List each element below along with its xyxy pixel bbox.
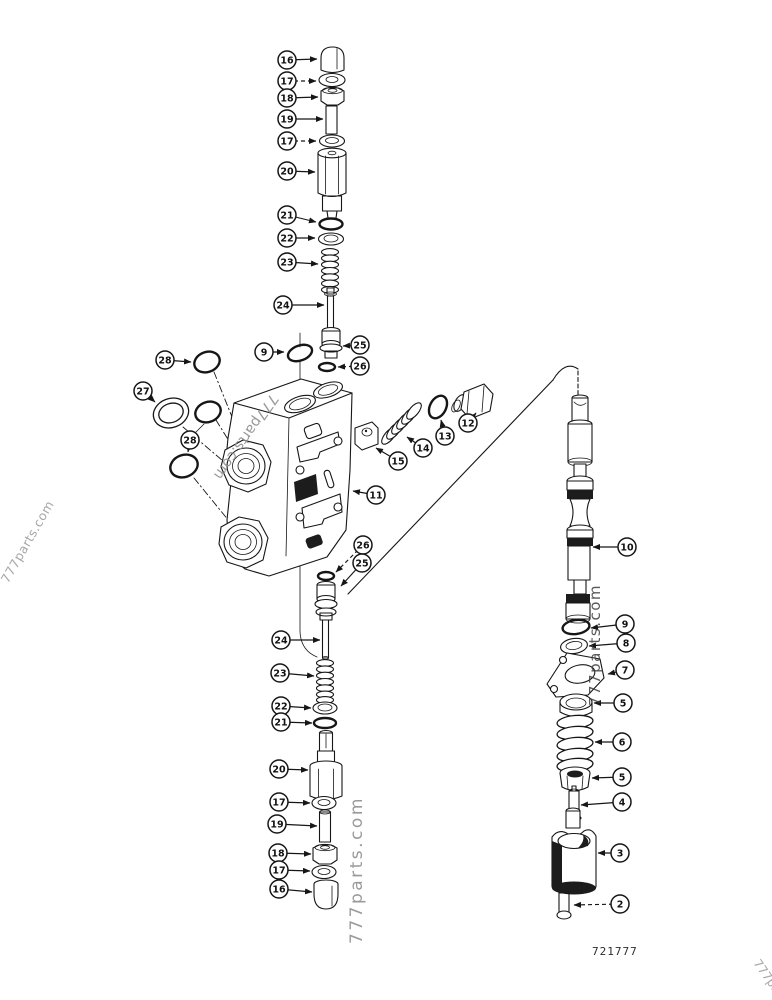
callout-2: 2 bbox=[574, 895, 629, 913]
exploded-parts-diagram: 1617181917202122232492526282728111514131… bbox=[0, 0, 772, 1000]
svg-text:13: 13 bbox=[438, 431, 451, 442]
callout-balloons: 1617181917202122232492526282728111514131… bbox=[134, 51, 636, 913]
figure-number: 721777 bbox=[592, 945, 638, 958]
callout-5: 5 bbox=[592, 768, 631, 786]
callout-19: 19 bbox=[268, 815, 317, 833]
poppet-stem-24-bottom bbox=[323, 620, 329, 660]
callout-6: 6 bbox=[595, 733, 631, 751]
callout-17: 17 bbox=[278, 132, 316, 150]
svg-text:15: 15 bbox=[391, 456, 404, 467]
spring-23-top bbox=[322, 249, 339, 294]
svg-text:9: 9 bbox=[261, 347, 268, 358]
callout-20: 20 bbox=[270, 760, 308, 778]
svg-text:25: 25 bbox=[355, 558, 368, 569]
adjusting-screw-19-top bbox=[326, 106, 337, 134]
svg-text:3: 3 bbox=[617, 848, 624, 859]
callout-23: 23 bbox=[278, 253, 318, 271]
adjusting-body-20-bottom bbox=[310, 731, 342, 800]
svg-text:21: 21 bbox=[274, 717, 287, 728]
svg-text:5: 5 bbox=[619, 772, 626, 783]
callout-22: 22 bbox=[272, 697, 311, 715]
callout-25: 25 bbox=[343, 336, 369, 354]
washer-17-c bbox=[312, 797, 336, 810]
svg-text:19: 19 bbox=[270, 819, 283, 830]
svg-text:17: 17 bbox=[280, 136, 293, 147]
spring-6 bbox=[557, 714, 594, 773]
locknut-18-bottom bbox=[313, 844, 337, 864]
svg-text:20: 20 bbox=[280, 166, 294, 177]
svg-text:2: 2 bbox=[617, 899, 624, 910]
retainer-screw-2 bbox=[557, 893, 571, 919]
watermark-left-edge: 777parts.com bbox=[0, 498, 57, 586]
o-ring-21-top bbox=[320, 219, 343, 230]
callout-17: 17 bbox=[278, 72, 316, 90]
hex-plug-12 bbox=[450, 384, 493, 419]
side-port-boss-lower bbox=[219, 517, 268, 568]
lower-poppet-stack bbox=[315, 572, 337, 660]
poppet-25-bottom bbox=[315, 582, 337, 621]
valve-body-11 bbox=[219, 379, 352, 576]
acorn-cap-16-bottom bbox=[314, 880, 338, 909]
lower-relief-valve-stack bbox=[310, 660, 342, 909]
o-ring-21-bottom bbox=[314, 718, 336, 728]
svg-text:16: 16 bbox=[280, 55, 294, 66]
callout-20: 20 bbox=[278, 162, 315, 180]
callout-17: 17 bbox=[270, 793, 310, 811]
callout-7: 7 bbox=[608, 661, 634, 679]
svg-text:11: 11 bbox=[369, 490, 382, 501]
parts-diagram-page: 1617181917202122232492526282728111514131… bbox=[0, 0, 772, 1000]
washer-8 bbox=[560, 637, 589, 656]
o-ring-28-b bbox=[192, 398, 223, 426]
washer-17-top bbox=[319, 74, 345, 87]
spring-14 bbox=[379, 400, 424, 446]
callout-18: 18 bbox=[269, 844, 311, 862]
callout-18: 18 bbox=[278, 89, 318, 107]
svg-text:7: 7 bbox=[622, 665, 629, 676]
svg-text:16: 16 bbox=[272, 884, 286, 895]
adjusting-body-20-top bbox=[318, 148, 346, 219]
callout-10: 10 bbox=[593, 538, 636, 556]
svg-text:17: 17 bbox=[272, 865, 285, 876]
callout-4: 4 bbox=[581, 793, 631, 811]
svg-text:24: 24 bbox=[276, 300, 290, 311]
svg-text:28: 28 bbox=[183, 435, 197, 446]
svg-text:10: 10 bbox=[620, 542, 634, 553]
watermark-bottom-left: 777parts.com bbox=[347, 796, 367, 944]
callout-17: 17 bbox=[270, 861, 310, 879]
callout-16: 16 bbox=[278, 51, 317, 69]
callout-24: 24 bbox=[274, 296, 324, 314]
callout-13: 13 bbox=[436, 420, 454, 445]
svg-text:23: 23 bbox=[280, 257, 293, 268]
callout-22: 22 bbox=[278, 229, 315, 247]
svg-text:8: 8 bbox=[623, 638, 630, 649]
end-cap-3 bbox=[552, 808, 596, 895]
svg-text:12: 12 bbox=[461, 418, 474, 429]
locknut-18-top bbox=[321, 87, 344, 105]
callout-25: 25 bbox=[341, 554, 371, 586]
acorn-cap-16-top bbox=[321, 47, 344, 73]
o-ring-26-top bbox=[319, 363, 335, 371]
o-ring-28-c bbox=[167, 451, 201, 481]
callout-26: 26 bbox=[338, 357, 369, 375]
svg-text:26: 26 bbox=[356, 540, 370, 551]
svg-text:17: 17 bbox=[280, 76, 293, 87]
svg-text:23: 23 bbox=[273, 668, 286, 679]
svg-text:21: 21 bbox=[280, 210, 293, 221]
washer-17b-top bbox=[320, 135, 345, 147]
svg-text:26: 26 bbox=[353, 361, 367, 372]
adjusting-screw-19-bottom bbox=[320, 810, 331, 842]
svg-text:4: 4 bbox=[619, 797, 626, 808]
washer-17-d bbox=[312, 866, 336, 879]
svg-text:18: 18 bbox=[280, 93, 294, 104]
callout-28: 28 bbox=[181, 431, 199, 452]
watermark-bottom-right-corner: 777parts.com bbox=[751, 957, 772, 1000]
svg-text:27: 27 bbox=[136, 386, 149, 397]
callout-21: 21 bbox=[272, 713, 312, 731]
poppet-stem-24-top bbox=[325, 288, 337, 328]
watermark-right-middle: 777parts.com bbox=[586, 584, 604, 706]
callout-16: 16 bbox=[270, 880, 312, 898]
svg-text:18: 18 bbox=[271, 848, 285, 859]
callout-9: 9 bbox=[255, 343, 284, 361]
callout-24: 24 bbox=[272, 631, 320, 649]
callout-21: 21 bbox=[278, 206, 316, 224]
callout-23: 23 bbox=[271, 664, 314, 682]
o-ring-28-a bbox=[191, 348, 222, 376]
svg-text:6: 6 bbox=[619, 737, 626, 748]
poppet-25-top bbox=[320, 328, 342, 359]
o-ring-26-bottom bbox=[318, 572, 334, 580]
o-ring-13 bbox=[425, 393, 450, 422]
svg-text:5: 5 bbox=[620, 698, 627, 709]
callout-14: 14 bbox=[407, 437, 432, 457]
svg-text:22: 22 bbox=[280, 233, 293, 244]
backup-ring-27 bbox=[149, 393, 193, 433]
svg-text:22: 22 bbox=[274, 701, 287, 712]
callout-28: 28 bbox=[156, 351, 191, 369]
o-ring-9-left bbox=[286, 342, 315, 365]
svg-text:20: 20 bbox=[272, 764, 286, 775]
piston-plug-15 bbox=[355, 422, 378, 450]
callout-12: 12 bbox=[459, 413, 477, 432]
svg-text:17: 17 bbox=[272, 797, 285, 808]
callout-3: 3 bbox=[598, 844, 629, 862]
svg-text:28: 28 bbox=[158, 355, 172, 366]
svg-text:9: 9 bbox=[622, 619, 629, 630]
callout-19: 19 bbox=[278, 110, 323, 128]
svg-text:14: 14 bbox=[416, 443, 430, 454]
svg-text:25: 25 bbox=[353, 340, 366, 351]
callout-11: 11 bbox=[353, 486, 385, 504]
spring-23-bottom bbox=[317, 660, 334, 704]
svg-text:24: 24 bbox=[274, 635, 288, 646]
svg-text:19: 19 bbox=[280, 114, 293, 125]
callout-27: 27 bbox=[134, 382, 155, 402]
callout-15: 15 bbox=[376, 448, 407, 470]
